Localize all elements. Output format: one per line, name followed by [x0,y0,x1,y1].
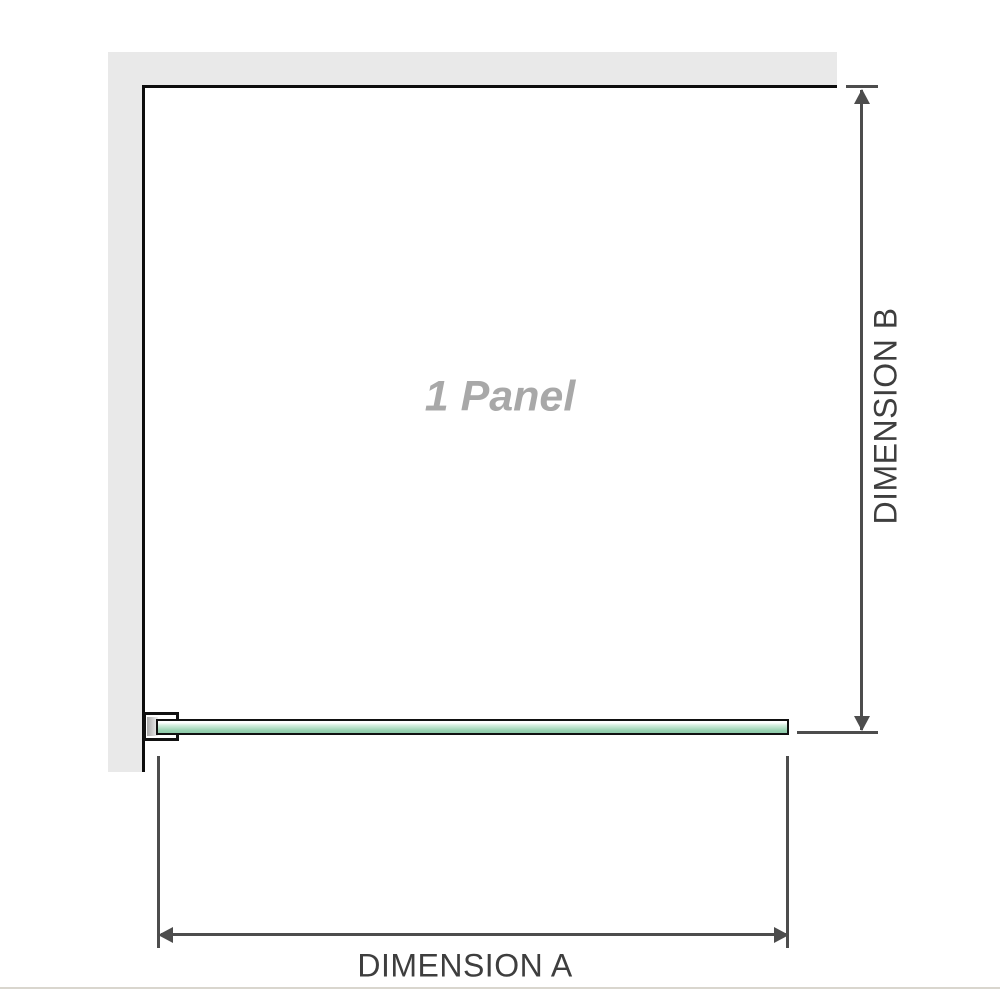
dimension-a-label: DIMENSION A [357,948,572,985]
dimension-b-top-tick [846,85,878,88]
arrow-up-icon [854,89,870,104]
glass-panel [156,719,789,735]
dimension-b-line [860,90,863,730]
arrow-down-icon [854,716,870,731]
footer-divider-line [0,987,1000,989]
panel-count-label: 1 Panel [425,373,576,422]
wall-left-strip [108,52,142,772]
dimension-a-line [161,933,786,936]
dimension-a-extension-line-right [786,756,789,948]
arrow-left-icon [158,927,173,943]
wall-inner-edge-top [142,85,837,88]
dimension-b-bottom-tick [797,731,878,734]
wall-inner-edge-left [142,85,145,772]
dimension-b-label: DIMENSION B [868,307,905,524]
dimension-a-extension-line-left [157,756,160,948]
wall-top-strip [108,52,837,85]
arrow-right-icon [774,927,789,943]
